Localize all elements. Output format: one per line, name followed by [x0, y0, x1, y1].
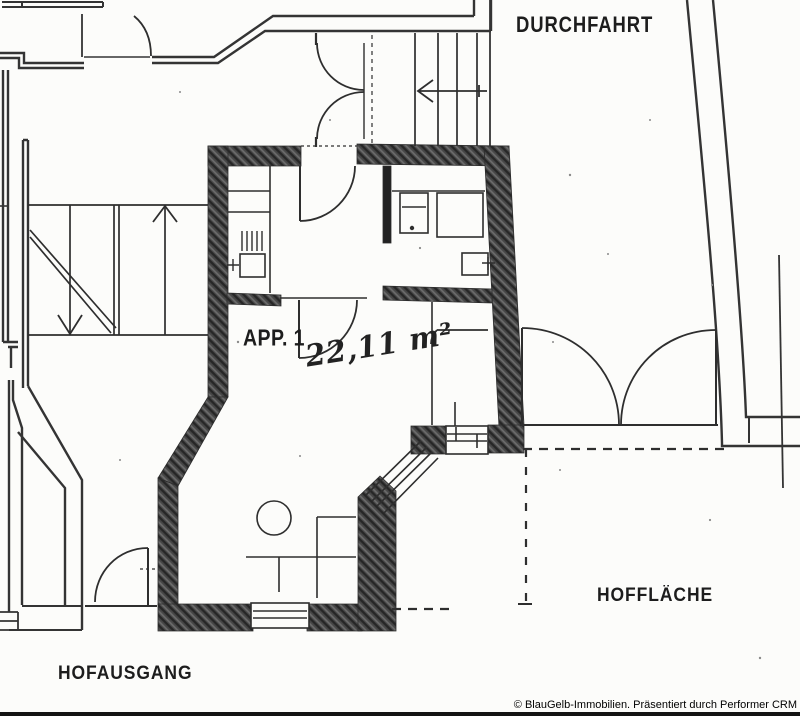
doors	[85, 16, 718, 606]
sink	[462, 253, 488, 275]
kitchenette	[227, 166, 270, 293]
wall-kitchen-bottom	[227, 293, 281, 306]
neighbor-building-walls	[0, 0, 800, 630]
floor-plan-page: DURCHFAHRT APP. 1 22,11 m² HOFFLÄCHE HOF…	[0, 0, 800, 716]
hofausgang-door	[85, 548, 157, 606]
courtyard-double-gate	[520, 328, 718, 425]
bathroom	[392, 191, 495, 275]
wall-lower-left	[158, 478, 178, 605]
footer-bar	[0, 712, 800, 716]
wall-bath-partition	[383, 166, 391, 243]
appliance	[240, 254, 265, 277]
label-apartment: APP. 1	[243, 324, 305, 352]
topleft-door	[134, 16, 151, 56]
wall-window-end-block	[488, 425, 524, 453]
furniture	[246, 501, 356, 598]
wall-right	[484, 146, 524, 427]
stairs-left	[28, 205, 208, 335]
shower	[437, 193, 483, 237]
table-round	[257, 501, 291, 535]
label-hofflaeche: HOFFLÄCHE	[597, 585, 713, 607]
label-durchfahrt: DURCHFAHRT	[516, 13, 653, 38]
label-hofausgang: HOFAUSGANG	[58, 663, 192, 685]
wall-bay-corner-block	[411, 426, 446, 454]
toilet	[400, 193, 428, 233]
double-door-stairhall	[316, 33, 372, 147]
wall-bay-pier	[358, 476, 396, 631]
copyright-text: © BlauGelb-Immobilien. Präsentiert durch…	[514, 699, 797, 711]
radiator	[242, 231, 262, 251]
wall-bottom-right	[307, 604, 362, 631]
wall-left	[208, 146, 228, 397]
stairs-top	[415, 33, 487, 146]
wall-left-diagonal	[158, 397, 228, 486]
apartment-walls	[158, 144, 524, 631]
entrance-door	[300, 146, 357, 221]
wall-bath-bottom	[383, 286, 492, 303]
wall-bottom-left	[158, 604, 253, 631]
